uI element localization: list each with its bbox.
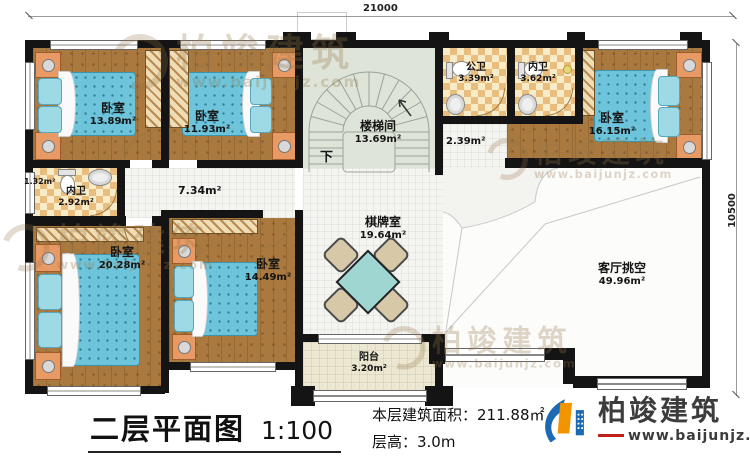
pillow xyxy=(250,106,272,133)
wall-divider1-bottom xyxy=(161,210,169,393)
wardrobe-bedroom-bm xyxy=(172,219,258,234)
pillow xyxy=(658,76,680,106)
window-bottom-bedroom-bm xyxy=(190,362,276,372)
footer: 二层平面图 1:100 本层建筑面积：211.88㎡ 层高：3.0m 柏竣建筑 xyxy=(0,398,750,460)
lamp-icon xyxy=(683,141,696,154)
room-name: 内卫 xyxy=(66,186,86,198)
wall-divider2-top xyxy=(295,40,303,168)
pillow xyxy=(250,78,272,105)
nightstand xyxy=(172,334,196,360)
nightstand xyxy=(35,244,61,272)
room-area: 49.96m² xyxy=(599,276,645,288)
pillow xyxy=(174,266,194,298)
room-name: 内卫 xyxy=(528,62,548,74)
room-area: 14.49m² xyxy=(245,272,291,284)
room-name: 公卫 xyxy=(466,62,486,74)
room-label-bedroom-bottom-mid: 卧室 14.49m² xyxy=(245,258,291,283)
window-living-bottom xyxy=(597,378,687,390)
room-label-living-void: 客厅挑空 49.96m² xyxy=(598,262,646,287)
nightstand xyxy=(272,52,296,78)
company-logo: 柏竣建筑 www.baijunjz.com xyxy=(538,390,750,450)
pillow xyxy=(38,274,62,310)
wall-pier xyxy=(680,32,702,40)
room-area: 2.92m² xyxy=(58,198,94,208)
pillow xyxy=(38,106,62,133)
wall-pier xyxy=(283,32,311,40)
sink-icon xyxy=(88,169,112,186)
room-area: 13.89m² xyxy=(90,116,136,128)
room-label-ensuite-top: 内卫 3.62m² xyxy=(520,62,556,84)
pillow xyxy=(658,107,680,137)
closet-area-label: 1.32m² xyxy=(24,177,56,186)
window-left-bedroom1 xyxy=(25,62,35,130)
window-top-bedroom1 xyxy=(50,40,138,50)
lamp-icon xyxy=(278,59,291,72)
bed-blanket xyxy=(62,253,80,367)
wall-bedroom-bm-top xyxy=(161,210,263,218)
window-top-bedroom2 xyxy=(180,40,266,50)
company-logo-icon xyxy=(538,390,592,450)
room-name: 卧室 xyxy=(256,258,280,272)
lamp-icon xyxy=(178,245,191,258)
nightstand xyxy=(35,352,61,380)
plan-title-block: 二层平面图 1:100 xyxy=(88,406,341,453)
hallway-area-label: 7.34m² xyxy=(178,184,221,197)
bed-blanket xyxy=(192,261,208,337)
room-label-bedroom-top-left: 卧室 13.89m² xyxy=(90,102,136,127)
room-area: 3.20m² xyxy=(351,364,387,374)
wall-bedroom-tr-bottom xyxy=(505,158,702,168)
lamp-icon xyxy=(42,59,55,72)
wall-bedroom1-bottom-a xyxy=(25,160,130,168)
room-label-balcony: 阳台 3.20m² xyxy=(351,352,387,374)
wall-bedroom2-bottom xyxy=(197,160,295,168)
wall-bath-bedroom-tr xyxy=(575,40,583,124)
room-area: 11.93m² xyxy=(184,124,230,136)
window-living-step xyxy=(445,348,545,362)
wall-bedroom1-bottom-b xyxy=(152,160,169,168)
wall-pier xyxy=(336,32,356,40)
sink-icon xyxy=(518,94,537,115)
plan-title: 二层平面图 xyxy=(90,406,245,448)
wall-bath-divider xyxy=(507,40,515,124)
lamp-icon xyxy=(278,140,291,153)
wall-pier xyxy=(567,32,585,40)
window-top-bedroom-tr xyxy=(598,40,688,50)
pillow xyxy=(38,78,62,105)
room-area: 3.39m² xyxy=(458,74,494,84)
wall-divider2-bottom xyxy=(295,210,303,342)
room-area: 19.64m² xyxy=(360,230,406,242)
room-name: 客厅挑空 xyxy=(598,262,646,276)
room-name: 卧室 xyxy=(600,112,624,126)
plan-info-block: 本层建筑面积：211.88㎡ 层高：3.0m xyxy=(372,402,545,456)
wall-pier xyxy=(429,32,449,40)
balcony-wall-left xyxy=(295,342,303,390)
pillow xyxy=(38,312,62,348)
lamp-icon xyxy=(683,59,696,72)
room-name: 阳台 xyxy=(359,352,379,364)
pillow xyxy=(174,300,194,332)
nightstand xyxy=(676,52,702,78)
wall-ensuite-left-right xyxy=(117,160,125,224)
room-label-bedroom-top-mid: 卧室 11.93m² xyxy=(184,110,230,135)
balcony-wall-right xyxy=(435,342,443,390)
wall-bathL-bottom-a xyxy=(25,216,126,226)
nightstand xyxy=(676,134,702,160)
wall-divider1-top xyxy=(161,40,169,168)
company-url: www.baijunjz.com xyxy=(628,428,750,444)
dimension-line-top xyxy=(28,16,734,17)
lamp-icon xyxy=(42,140,55,153)
room-name: 楼梯间 xyxy=(360,120,396,134)
floor-height-line: 层高：3.0m xyxy=(372,429,545,456)
floor-area-line: 本层建筑面积：211.88㎡ xyxy=(372,402,545,429)
room-label-public-bathroom: 公卫 3.39m² xyxy=(458,62,494,84)
room-name: 卧室 xyxy=(110,246,134,260)
nightstand xyxy=(272,132,296,160)
window-left-bedroom-bl xyxy=(25,262,35,360)
lamp-icon xyxy=(178,341,191,354)
room-name: 卧室 xyxy=(101,102,125,116)
room-label-stairwell: 楼梯间 13.69m² xyxy=(355,120,401,145)
plan-scale: 1:100 xyxy=(261,416,333,445)
room-label-ensuite-left: 内卫 2.92m² xyxy=(58,186,94,208)
room-label-bedroom-top-right: 卧室 16.15m² xyxy=(589,112,635,137)
dimension-width-label: 21000 xyxy=(360,3,401,14)
floorplan-page: 21000 10500 xyxy=(0,0,750,460)
wall-baths-bottom xyxy=(443,116,575,124)
logo-red-accent xyxy=(598,434,624,437)
wall-stair-right xyxy=(435,40,443,175)
room-area: 3.62m² xyxy=(520,74,556,84)
window-bottom-bedroom-bl xyxy=(47,386,141,396)
room-area: 13.69m² xyxy=(355,134,401,146)
room-area: 16.15m² xyxy=(589,126,635,138)
room-name: 卧室 xyxy=(195,110,219,124)
landing-area-label: 2.39m² xyxy=(446,136,485,147)
lamp-icon xyxy=(42,360,55,373)
stairs-down-label: 下 xyxy=(320,146,333,165)
room-name: 棋牌室 xyxy=(365,216,401,230)
floor-drain-icon xyxy=(563,65,572,74)
sink-icon xyxy=(446,94,465,115)
room-label-game-room: 棋牌室 19.64m² xyxy=(360,216,406,241)
window-right-bedroom-tr xyxy=(702,62,712,160)
balcony-sliding-door xyxy=(318,334,422,344)
company-name: 柏竣建筑 xyxy=(598,397,750,425)
room-label-bedroom-bottom-left: 卧室 20.28m² xyxy=(99,246,145,271)
lamp-icon xyxy=(42,252,55,265)
room-area: 20.28m² xyxy=(99,260,145,272)
dimension-height-label: 10500 xyxy=(727,190,738,231)
